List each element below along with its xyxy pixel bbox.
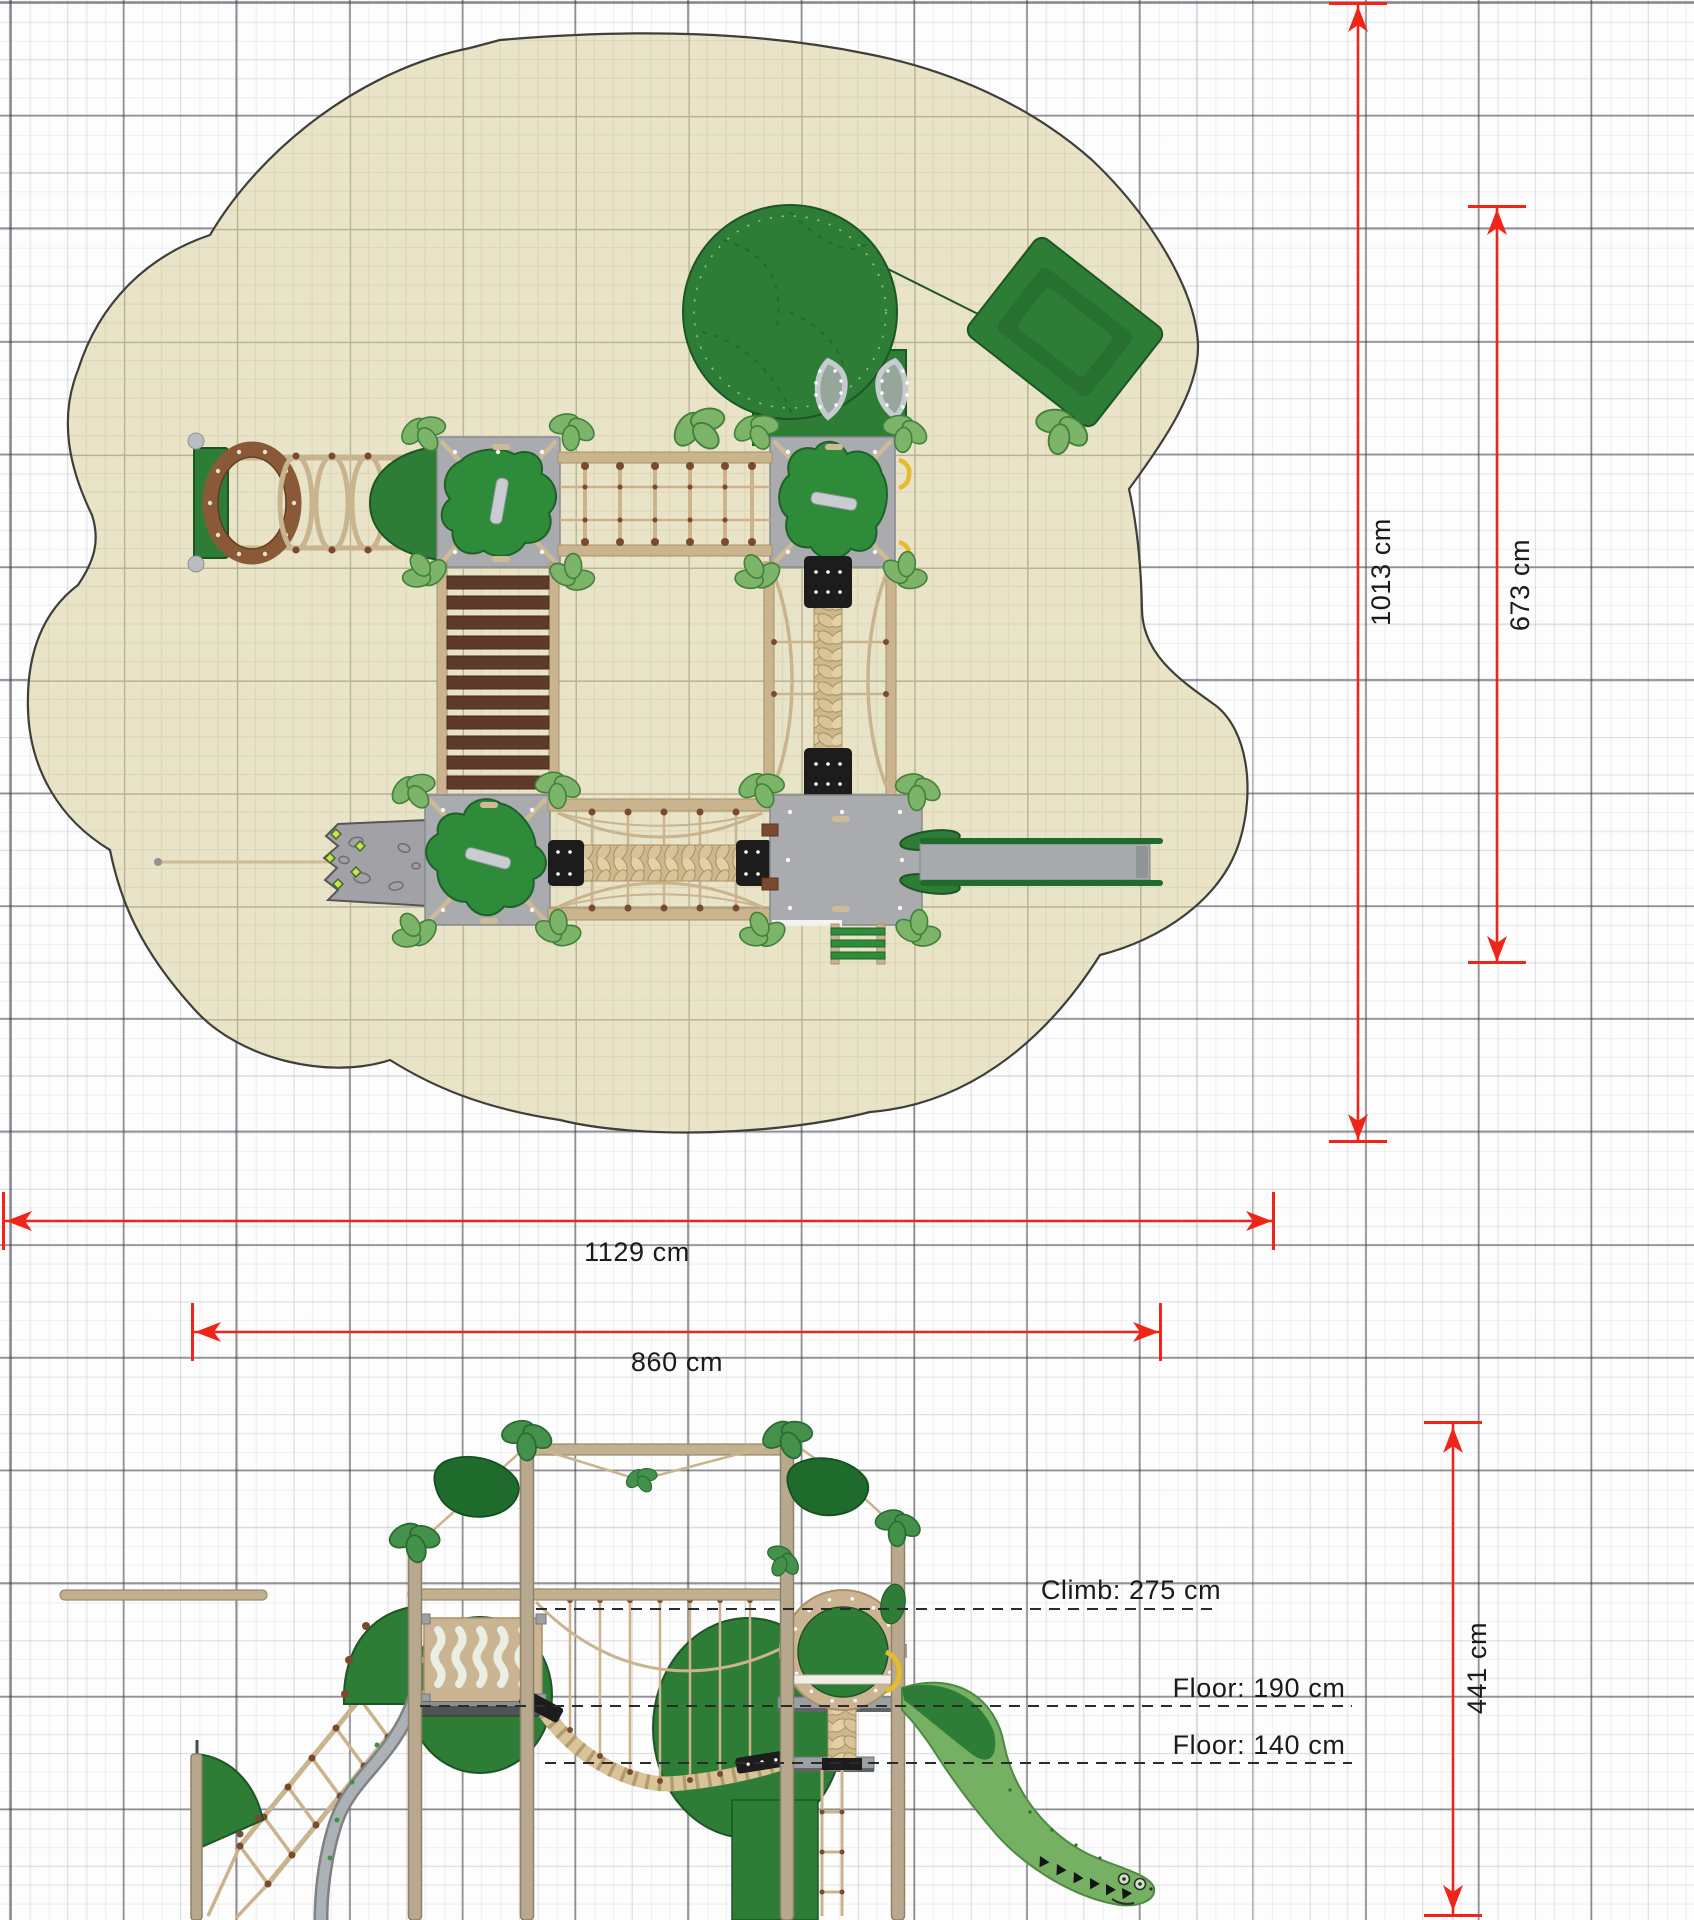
crocodile-slide — [902, 1683, 1154, 1906]
dimension-label: 441 cm — [1462, 1622, 1492, 1714]
access-ladder-plan — [831, 924, 885, 964]
platform-top-right — [770, 437, 909, 570]
top-rail-mid — [408, 1589, 790, 1600]
dimension-label: 860 cm — [631, 1347, 723, 1377]
dimension-label: 1129 cm — [584, 1237, 690, 1267]
side-rail-left — [60, 1590, 267, 1600]
dimension-plan-inner-vertical: 673 cm — [1468, 205, 1535, 964]
playground-technical-drawing: 1013 cm 673 cm 1129 cm 860 cm — [0, 0, 1694, 1920]
elevation-annotations: Climb: 275 cm Floor: 190 cm Floor: 140 c… — [420, 1421, 1492, 1917]
net-cone-side — [197, 1754, 263, 1849]
dimension-plan-inner-horizontal: 860 cm — [191, 1303, 1162, 1377]
top-rail-high — [522, 1444, 790, 1455]
rock-climbing-wall — [324, 820, 428, 906]
plank-bridge — [437, 563, 559, 802]
safety-zone-outline — [28, 33, 1248, 1132]
dimension-label: 1013 cm — [1366, 518, 1396, 626]
rope-ladder — [820, 1770, 845, 1916]
plan-view — [28, 33, 1248, 1132]
rope-anchor — [154, 858, 162, 866]
platform-bottom-right — [762, 795, 922, 926]
dimension-plan-outer-horizontal: 1129 cm — [2, 1192, 1275, 1267]
platform-bottom-left — [408, 779, 565, 937]
dimension-plan-outer-vertical: 1013 cm — [1329, 2, 1396, 1143]
climb-height-label: Climb: 275 cm — [1041, 1575, 1221, 1605]
dimension-elevation-height: 441 cm — [1424, 1421, 1492, 1917]
elevation-view — [60, 1410, 1154, 1920]
platform-top-left — [433, 437, 563, 567]
floor-upper-label: Floor: 190 cm — [1173, 1673, 1346, 1703]
floor-lower-label: Floor: 140 cm — [1173, 1730, 1346, 1760]
dimension-label: 673 cm — [1505, 539, 1535, 631]
